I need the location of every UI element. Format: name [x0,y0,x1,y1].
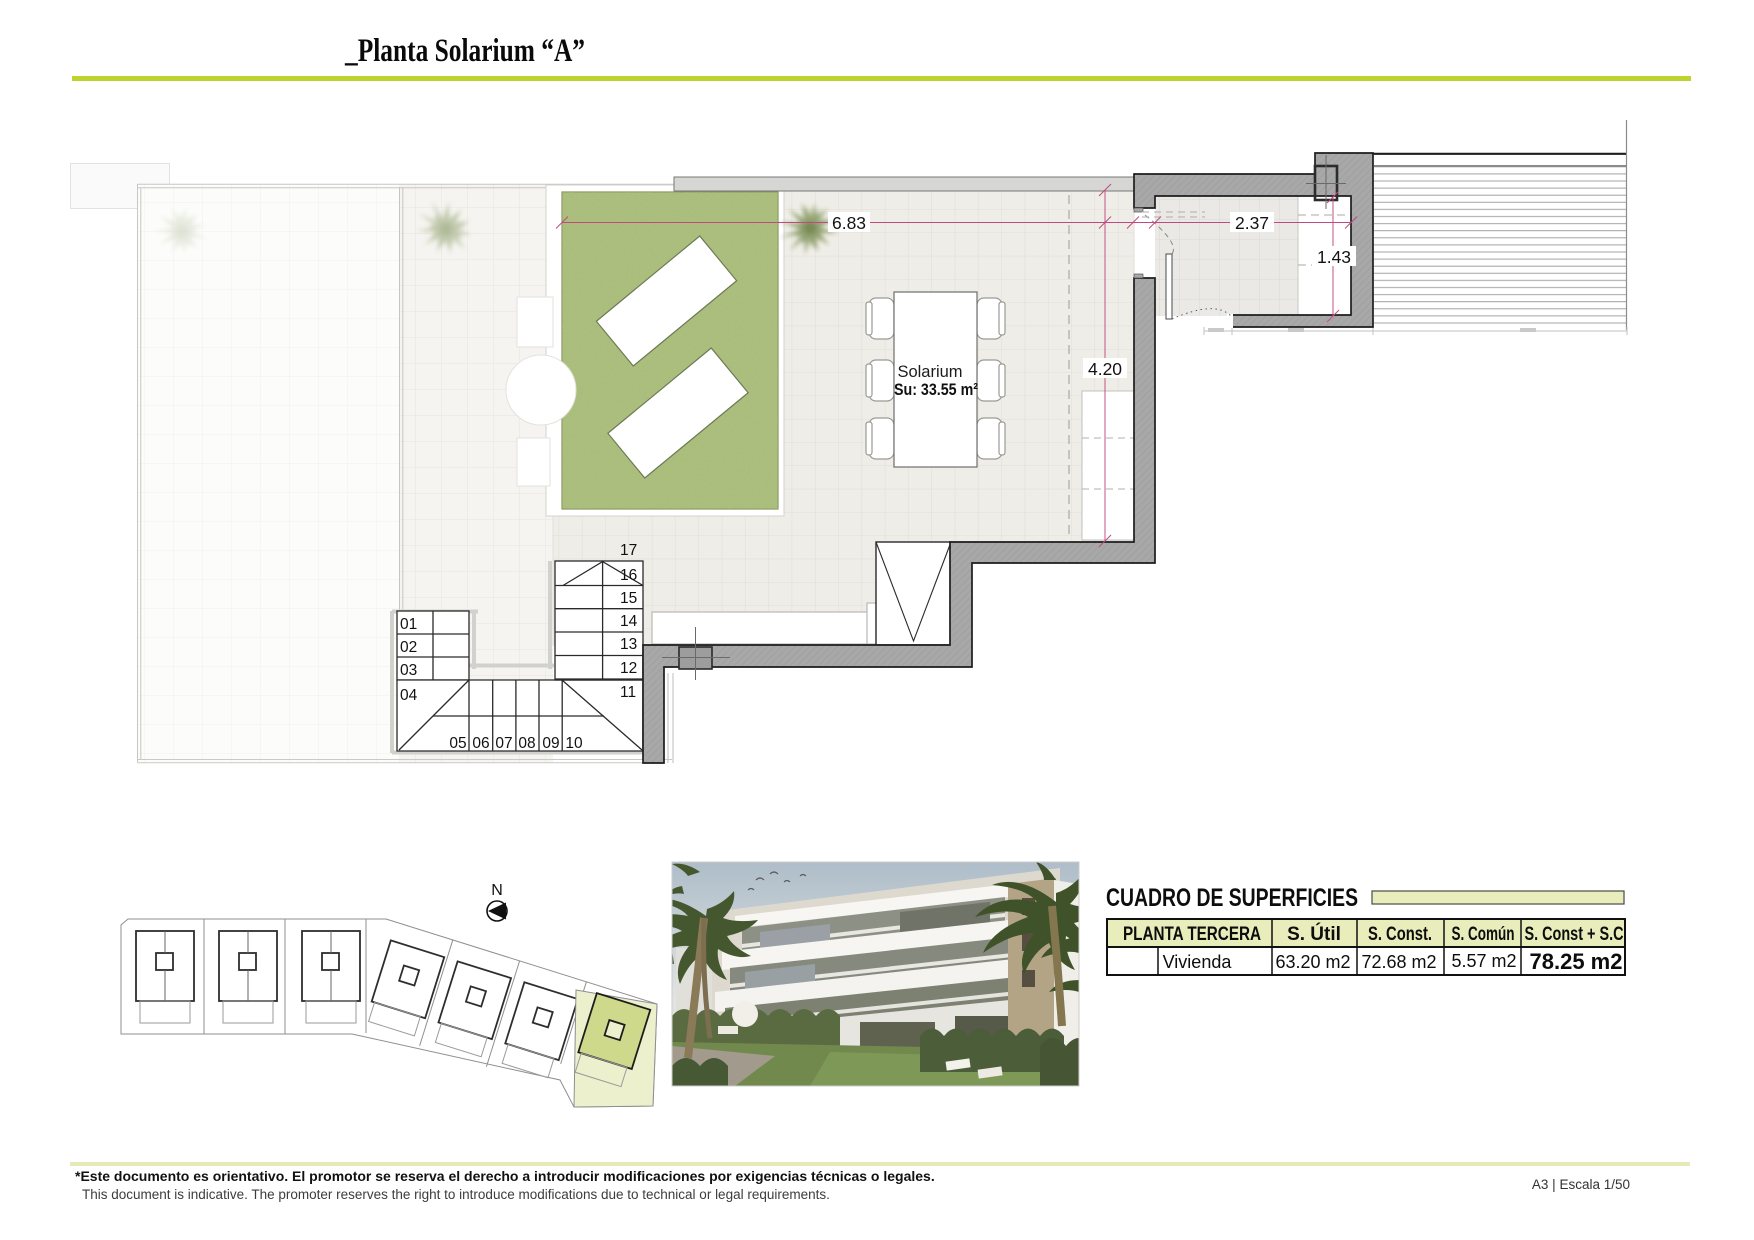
svg-text:2.37: 2.37 [1235,213,1269,233]
svg-text:S. Const.: S. Const. [1368,924,1432,945]
svg-text:16: 16 [620,567,637,584]
svg-text:PLANTA TERCERA: PLANTA TERCERA [1123,924,1261,945]
svg-text:N: N [491,882,503,899]
svg-text:10: 10 [565,735,583,752]
svg-text:S. Const + S.C: S. Const + S.C [1525,924,1624,945]
svg-text:Su: 33.55 m²: Su: 33.55 m² [894,380,978,399]
svg-text:07: 07 [495,735,512,752]
svg-text:63.20 m2: 63.20 m2 [1275,952,1350,972]
svg-text:08: 08 [518,735,535,752]
svg-text:12: 12 [620,660,637,677]
svg-text:11: 11 [620,684,636,701]
svg-text:Solarium: Solarium [897,363,962,381]
svg-text:05: 05 [449,735,466,752]
svg-text:*Este documento es orientativo: *Este documento es orientativo. El promo… [75,1168,935,1184]
svg-text:A3 | Escala 1/50: A3 | Escala 1/50 [1532,1177,1630,1192]
svg-text:Vivienda: Vivienda [1163,952,1233,972]
svg-text:_Planta Solarium “A”: _Planta Solarium “A” [344,33,585,69]
svg-text:6.83: 6.83 [832,213,866,233]
svg-text:03: 03 [400,662,417,679]
svg-text:15: 15 [620,590,637,607]
svg-text:04: 04 [400,687,418,704]
svg-text:72.68 m2: 72.68 m2 [1361,952,1436,972]
svg-text:S. Común: S. Común [1452,924,1515,945]
svg-text:02: 02 [400,639,417,656]
svg-text:78.25 m2: 78.25 m2 [1530,949,1623,974]
svg-text:06: 06 [472,735,489,752]
svg-text:17: 17 [620,542,637,559]
svg-text:This document is indicative. T: This document is indicative. The promote… [82,1187,830,1202]
svg-text:S. Útil: S. Útil [1287,923,1341,945]
svg-text:CUADRO DE SUPERFICIES: CUADRO DE SUPERFICIES [1106,884,1358,912]
svg-text:09: 09 [542,735,559,752]
svg-text:1.43: 1.43 [1317,247,1351,267]
svg-text:4.20: 4.20 [1088,359,1122,379]
svg-text:5.57 m2: 5.57 m2 [1451,951,1516,971]
svg-text:13: 13 [620,636,637,653]
svg-text:01: 01 [400,616,417,633]
svg-text:14: 14 [620,613,638,630]
